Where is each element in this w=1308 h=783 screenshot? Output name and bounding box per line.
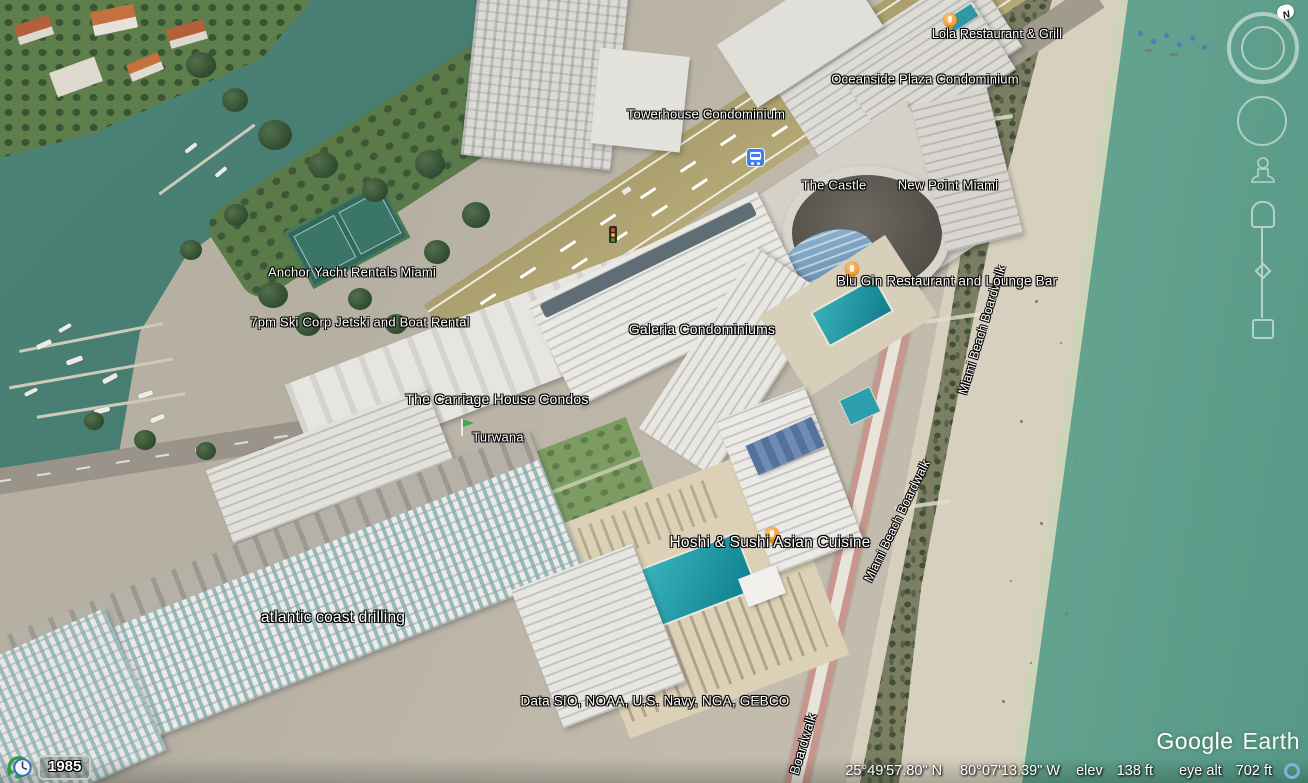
building-towerhouse-annex [590, 48, 690, 153]
time-year-chip[interactable]: 1985 [38, 755, 91, 780]
watermark-google: Google [1156, 728, 1233, 754]
watermark: Google Earth [1156, 728, 1300, 755]
zoom-slider[interactable] [1250, 201, 1274, 341]
place-label-towerhouse[interactable]: Towerhouse Condominium [627, 107, 785, 122]
place-label-turwana[interactable]: Turwana [472, 430, 524, 445]
place-label-blu-gin[interactable]: Blu Gin Restaurant and Lounge Bar [837, 274, 1058, 289]
scenery [1241, 26, 1285, 70]
scenery [166, 19, 208, 49]
time-indicator[interactable]: 1985 [6, 754, 91, 781]
status-elev-value: 138 ft [1117, 763, 1153, 779]
earth-viewport[interactable]: Lola Restaurant & Grill Oceanside Plaza … [0, 0, 1308, 783]
data-attribution: Data SIO, NOAA, U.S. Navy, NGA, GEBCO [521, 694, 790, 709]
place-label-castle[interactable]: The Castle [802, 178, 867, 193]
scenery [1251, 201, 1275, 228]
place-label-oceanside[interactable]: Oceanside Plaza Condominium [831, 72, 1019, 87]
place-label-ski-corp[interactable]: 7pm Ski Corp Jetski and Boat Rental [250, 315, 469, 330]
status-latitude: 25°49'57.80" N [845, 763, 942, 779]
restaurant-pin-lola[interactable] [943, 13, 957, 27]
scenery [611, 238, 615, 242]
watermark-earth: Earth [1243, 728, 1300, 754]
bus-stop-icon[interactable] [747, 149, 764, 166]
scenery [49, 57, 103, 98]
pegman-icon[interactable] [1249, 155, 1277, 199]
status-bar: 25°49'57.80" N 80°07'13.39" W elev 138 f… [845, 763, 1300, 779]
scenery [751, 162, 754, 165]
streaming-progress-icon [1284, 763, 1300, 779]
place-label-galeria[interactable]: Galeria Condominiums [629, 321, 775, 337]
status-elev-label: elev [1076, 763, 1103, 779]
scenery [757, 162, 760, 165]
traffic-light-icon [609, 226, 617, 243]
scenery [461, 419, 463, 436]
place-label-anchor-yacht[interactable]: Anchor Yacht Rentals Miami [268, 265, 436, 280]
scenery [1255, 263, 1272, 280]
scenery [1252, 319, 1274, 339]
place-label-hoshi[interactable]: Hoshi & Sushi Asian Cuisine [670, 534, 871, 552]
status-longitude: 80°07'13.39" W [960, 763, 1060, 779]
scenery [90, 4, 138, 37]
move-joystick[interactable] [1237, 96, 1287, 146]
place-label-new-point[interactable]: New Point Miami [898, 178, 999, 193]
scenery [126, 52, 164, 81]
status-eye-alt-label: eye alt [1179, 763, 1222, 779]
status-eye-alt-value: 702 ft [1236, 763, 1272, 779]
scenery [611, 228, 615, 232]
place-label-lola[interactable]: Lola Restaurant & Grill [932, 27, 1062, 41]
place-label-carriage-house[interactable]: The Carriage House Condos [405, 391, 588, 407]
scenery [751, 154, 760, 157]
time-year-value: 1985 [48, 758, 81, 775]
historical-imagery-clock-icon[interactable] [6, 754, 33, 781]
place-label-atlantic[interactable]: atlantic coast drilling [261, 609, 405, 627]
scenery [621, 186, 631, 195]
scenery [611, 233, 615, 237]
scenery [14, 15, 54, 45]
